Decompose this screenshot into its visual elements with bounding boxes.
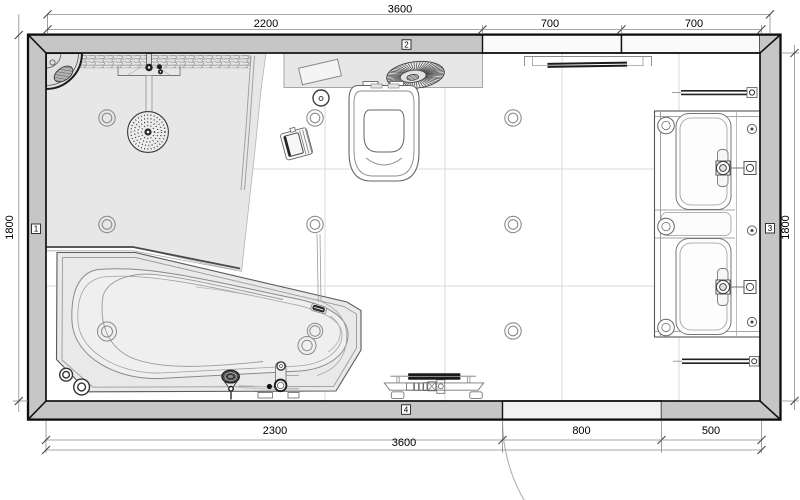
svg-text:700: 700 xyxy=(685,18,703,30)
svg-text:700: 700 xyxy=(541,18,559,30)
svg-text:800: 800 xyxy=(572,425,590,437)
svg-text:2300: 2300 xyxy=(263,425,287,437)
svg-text:1800: 1800 xyxy=(780,215,792,239)
svg-text:3: 3 xyxy=(768,224,773,233)
svg-text:3600: 3600 xyxy=(388,4,412,16)
svg-text:1800: 1800 xyxy=(4,215,16,239)
svg-text:2200: 2200 xyxy=(254,18,278,30)
svg-text:1: 1 xyxy=(34,225,39,234)
svg-text:500: 500 xyxy=(702,425,720,437)
svg-text:2: 2 xyxy=(404,40,409,49)
svg-text:4: 4 xyxy=(404,405,409,414)
svg-text:3600: 3600 xyxy=(392,437,416,449)
